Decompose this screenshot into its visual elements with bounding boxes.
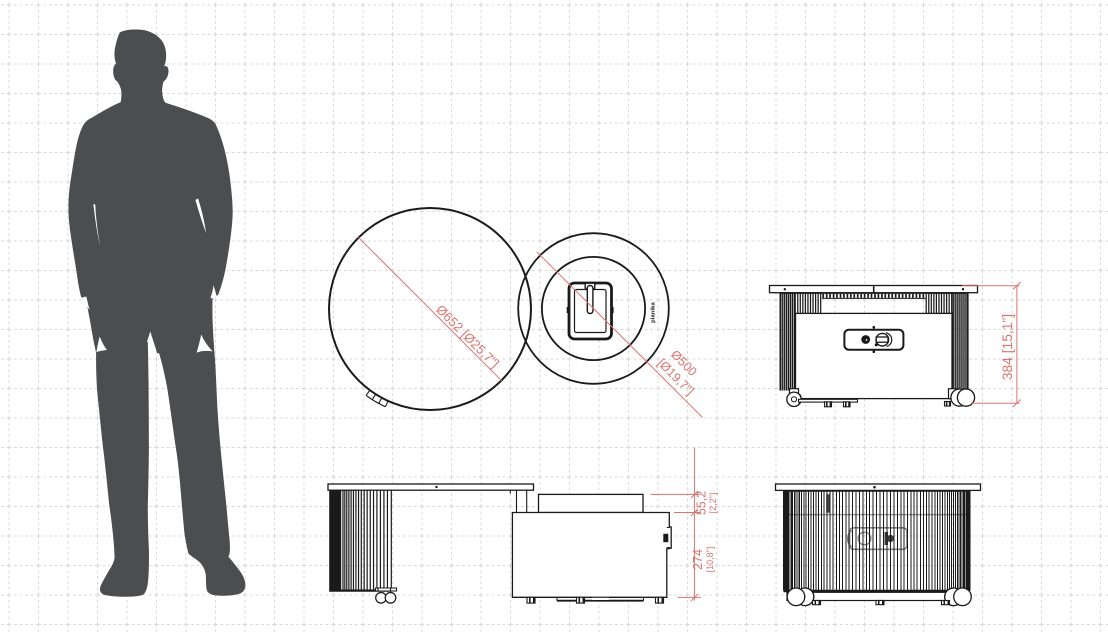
svg-text:274: 274: [691, 549, 705, 570]
svg-text:[10,8"]: [10,8"]: [705, 547, 715, 573]
svg-text:55,2: 55,2: [695, 491, 709, 515]
svg-text:384 [15,1"]: 384 [15,1"]: [1000, 314, 1015, 380]
svg-text:[2,2"]: [2,2"]: [708, 493, 718, 514]
svg-text:planika: planika: [651, 301, 657, 322]
